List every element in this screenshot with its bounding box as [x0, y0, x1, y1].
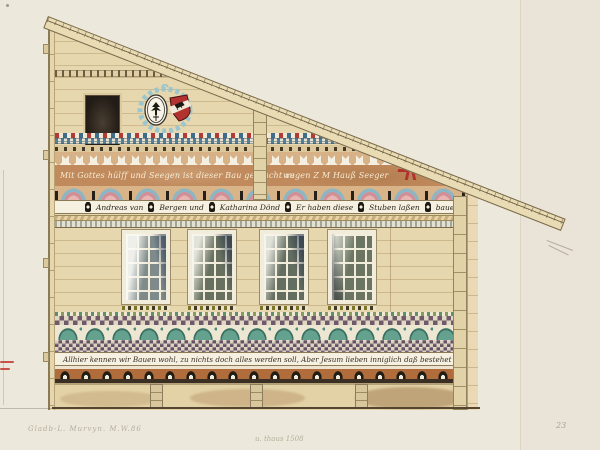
- left-wall-edge: [48, 28, 55, 410]
- motto-inscription-band: Allhier kennen wir Bauen wohl, zu nichts…: [55, 352, 478, 366]
- mid-block-post: [253, 110, 267, 200]
- corner-block-post: [453, 196, 467, 410]
- motto-text: Allhier kennen wir Bauen wohl, zu nichts…: [63, 355, 485, 364]
- edge-quoin: [43, 258, 49, 268]
- teal-bell-frieze: [55, 325, 478, 340]
- family-text-segment: Katharina Dönd: [220, 203, 280, 212]
- house-facade: Mit Gottes hülff und Seegen ist dieser B…: [55, 28, 478, 410]
- window-panes: [122, 230, 170, 304]
- red-paint-mark: [0, 368, 10, 370]
- gable-dentil-row: [55, 70, 167, 77]
- family-inscription-band: Andreas van Bergen und Katharina Dönd Er…: [55, 200, 478, 214]
- foundation-pier: [250, 384, 263, 409]
- window-panes: [260, 230, 308, 304]
- family-text-segment: Andreas van: [96, 203, 143, 212]
- family-text-segment: Bergen und: [159, 203, 203, 212]
- window-panes: [328, 230, 376, 304]
- scale-frieze: [55, 221, 478, 228]
- window-wall: [55, 228, 478, 312]
- paper-speck: [6, 4, 9, 7]
- plank-seam: [390, 228, 391, 312]
- rosette-icon: [500, 356, 507, 363]
- ground-line: [52, 407, 480, 409]
- red-paint-mark: [0, 361, 14, 363]
- foundation-wash: [355, 387, 465, 409]
- ground-guide-line: [0, 408, 52, 409]
- window: [188, 230, 236, 310]
- edge-quoin: [43, 150, 49, 160]
- pencil-annotation-center: u. thaus 1508: [255, 435, 304, 443]
- black-arch-frieze: [55, 366, 478, 379]
- window: [260, 230, 308, 310]
- foundation-wash: [60, 391, 160, 407]
- right-wall-strip: [467, 188, 479, 410]
- jar-ornament-icon: [358, 203, 364, 212]
- window-sill-beads: [188, 306, 236, 310]
- foundation-pier: [150, 384, 163, 409]
- family-text-segment: Er haben diese: [296, 203, 353, 212]
- blessing-text-right: wegen Z M Hauß Seeger: [283, 171, 389, 180]
- foundation-pier: [355, 384, 368, 409]
- pencil-annotation-left: Gladb-L. Murvyn. M.W.86: [28, 425, 142, 433]
- jar-ornament-icon: [425, 203, 431, 212]
- jar-ornament-icon: [148, 203, 154, 212]
- edge-quoin: [43, 44, 49, 54]
- foundation-wall: [55, 383, 478, 410]
- jar-ornament-icon: [85, 203, 91, 212]
- edge-quoin: [43, 352, 49, 362]
- window-sill-beads: [122, 306, 170, 310]
- window: [328, 230, 376, 310]
- jar-ornament-icon: [209, 203, 215, 212]
- window-sill-beads: [260, 306, 308, 310]
- watercolor-facade-drawing: Mit Gottes hülff und Seegen ist dieser B…: [0, 0, 600, 450]
- checker-frieze-lower: [55, 340, 478, 352]
- window-sill-beads: [328, 306, 376, 310]
- window: [122, 230, 170, 310]
- checker-frieze-upper: [55, 316, 478, 325]
- rosette-icon: [489, 356, 496, 363]
- page-number: 23: [556, 421, 566, 430]
- family-crest: [137, 84, 194, 134]
- family-text-segment: Stuben laßen: [369, 203, 420, 212]
- window-panes: [188, 230, 236, 304]
- foundation-wash: [190, 389, 305, 407]
- jar-ornament-icon: [285, 203, 291, 212]
